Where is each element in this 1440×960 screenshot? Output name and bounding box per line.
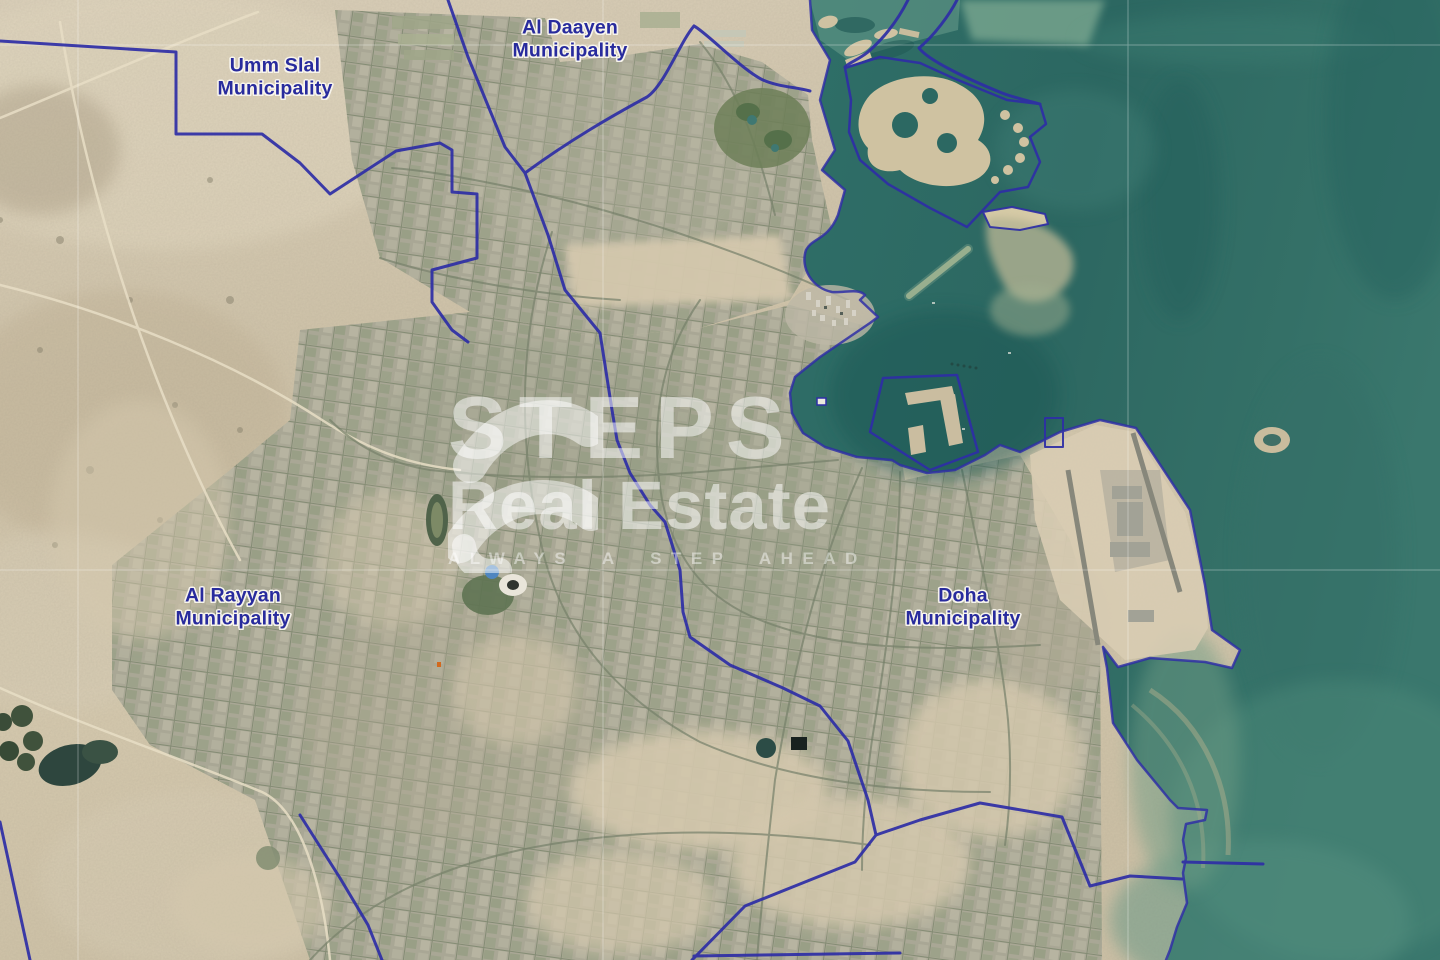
map-label-umm-slal: Umm Slal Municipality — [217, 55, 332, 102]
label-line: Municipality — [175, 608, 290, 631]
label-line: Al Daayen — [512, 17, 627, 40]
breakwater — [1183, 862, 1263, 864]
label-line: Municipality — [905, 608, 1020, 631]
label-line: Doha — [905, 585, 1020, 608]
ring-island — [1254, 427, 1290, 453]
map-canvas: Umm Slal Municipality Al Daayen Municipa… — [0, 0, 1440, 960]
satellite-map — [0, 0, 1440, 960]
label-line: Municipality — [217, 78, 332, 101]
label-line: Umm Slal — [217, 55, 332, 78]
marina-dock — [817, 398, 826, 405]
map-label-doha: Doha Municipality — [905, 585, 1020, 632]
label-line: Municipality — [512, 40, 627, 63]
label-line: Al Rayyan — [175, 585, 290, 608]
map-label-al-daayen: Al Daayen Municipality — [512, 17, 627, 64]
map-label-al-rayyan: Al Rayyan Municipality — [175, 585, 290, 632]
